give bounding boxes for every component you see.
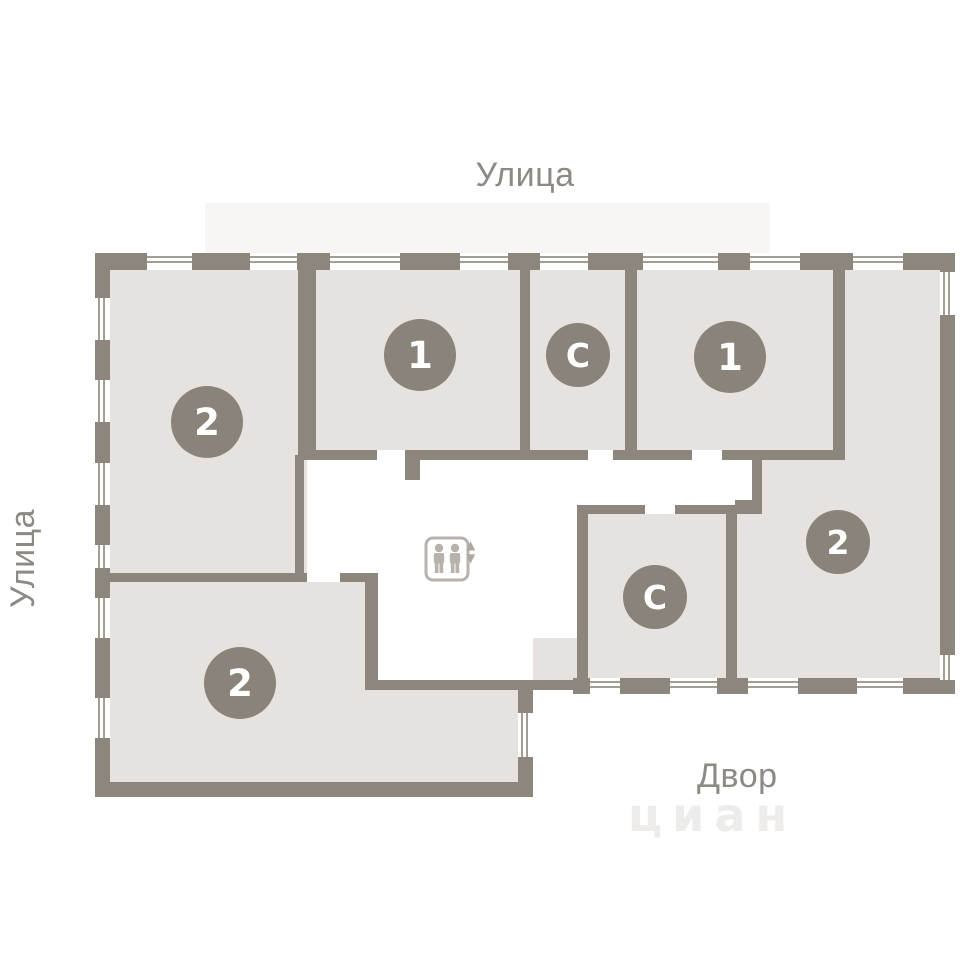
room-badge-two-room-top-left: 2 [171, 386, 243, 458]
window-top-5 [540, 253, 588, 270]
wall-studio-bottom-right [726, 505, 737, 692]
room-badge-two-room-right: 2 [806, 510, 870, 574]
door-gap-studio-bottom [645, 505, 675, 514]
window-left-4 [95, 545, 110, 568]
door-gap-one-room-left [377, 450, 405, 460]
room-badge-studio-top: С [546, 323, 610, 387]
floor-plan-image: 2 1 С 1 2 С 2 ▲ ▼ Улица Улица Двор циан [0, 0, 960, 960]
wall-2bl-extension-top [365, 680, 578, 690]
window-bottom-1 [590, 678, 620, 694]
room-badge-two-room-bottom-left: 2 [204, 647, 276, 719]
street-label-left: Улица [4, 483, 43, 633]
window-left-2 [95, 380, 110, 422]
window-right-1 [940, 272, 955, 315]
window-right-2 [940, 655, 955, 680]
window-top-7 [750, 253, 800, 270]
wall-studio-bottom-left [577, 505, 588, 692]
room-fill-vestibule [533, 638, 577, 682]
room-fill-two-room-right-b [760, 458, 942, 512]
window-top-3 [330, 253, 400, 270]
wall-between-2tl-and-1l [298, 268, 316, 459]
wall-2bl-right-upper [365, 578, 378, 688]
elevator-people-icon [424, 536, 470, 587]
window-left-3 [95, 463, 110, 505]
window-inner-right [518, 713, 533, 757]
room-fill-two-room-bottom-left-b [372, 688, 522, 785]
room-badge-one-room-left: 1 [384, 319, 456, 391]
wall-between-studio-top-and-1r [625, 268, 637, 455]
door-gap-one-room-right [692, 450, 722, 460]
watermark-logo: циан [628, 788, 797, 842]
window-left-5 [95, 598, 110, 638]
window-top-1 [147, 253, 192, 270]
door-gap-two-room-bottom-left [307, 573, 340, 582]
window-left-6 [95, 698, 110, 738]
room-badge-one-room-right: 1 [694, 321, 766, 393]
window-top-4 [460, 253, 508, 270]
street-side-strip [205, 203, 770, 253]
room-badge-studio-bottom: С [623, 565, 687, 629]
window-left-1 [95, 298, 110, 340]
wall-corridor-left [295, 455, 304, 578]
window-bottom-4 [857, 678, 903, 694]
window-top-2 [250, 253, 297, 270]
wall-outer-bottom-left [95, 782, 533, 797]
elevator-arrows: ▲ ▼ [466, 539, 475, 565]
wall-outer-right [940, 253, 955, 694]
wall-between-1r-and-2r [833, 268, 845, 460]
elevator-down-arrow-icon: ▼ [466, 552, 475, 565]
door-gap-studio-top [588, 450, 613, 460]
wall-stub-corridor [405, 458, 420, 480]
street-label-top: Улица [470, 156, 580, 195]
window-top-6 [643, 253, 718, 270]
window-bottom-3 [748, 678, 798, 694]
window-bottom-2 [670, 678, 717, 694]
room-fill-two-room-right-a [838, 268, 942, 462]
wall-between-1l-and-studio-top [520, 268, 530, 455]
wall-step-2r [735, 500, 762, 514]
window-top-8 [853, 253, 903, 270]
